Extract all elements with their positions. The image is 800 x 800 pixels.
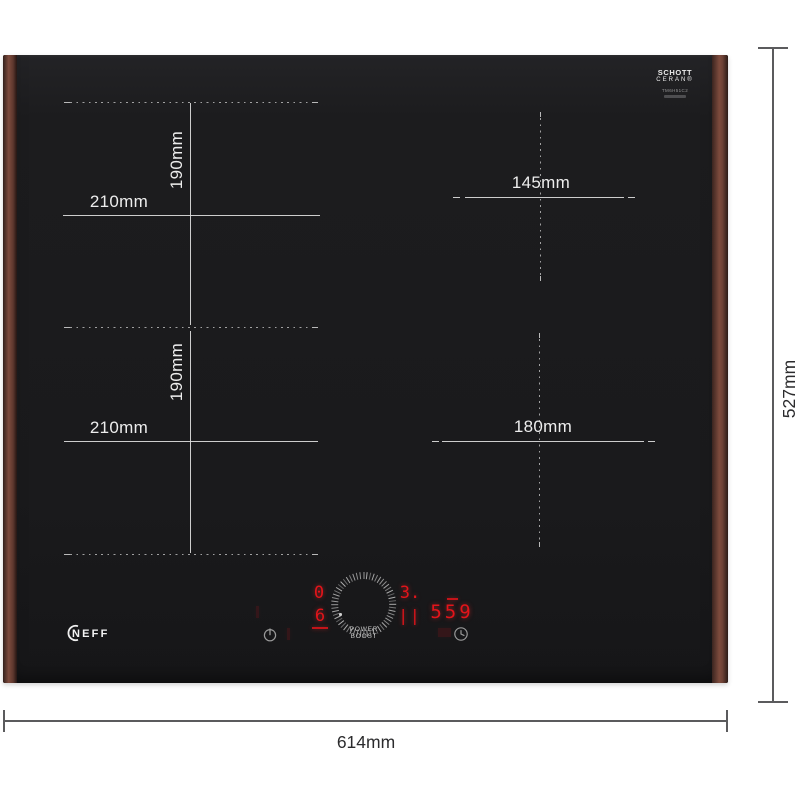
dial-tick — [332, 600, 339, 602]
flexzone-dotted-middle — [64, 327, 318, 328]
wood-trim-left — [3, 55, 17, 683]
dial-tick — [360, 572, 362, 579]
dial-tick — [332, 603, 339, 604]
schott-model-subtext-blur — [664, 95, 686, 98]
zone-bottomright-diameter-label: 180mm — [498, 417, 588, 437]
timer-overline — [447, 598, 458, 600]
zone-topright-dash-right — [628, 197, 635, 198]
schott-line1: SCHOTT — [645, 69, 705, 77]
width-dim-label: 614mm — [316, 732, 416, 752]
schott-ceran-mark: SCHOTT CERAN® TM6H51C2 — [645, 69, 705, 98]
dial-tick — [332, 606, 339, 608]
neff-logo-text: NEFF — [72, 628, 110, 640]
power-boost-line2: BOOST — [334, 633, 394, 640]
ghost-segment-timer — [438, 628, 451, 637]
dial-tick — [389, 606, 396, 608]
zone-topleft-depth-label: 190mm — [167, 115, 187, 205]
width-dim-line — [3, 720, 728, 722]
zone-bottomleft-width-label: 210mm — [74, 418, 164, 438]
timer-clock-icon — [453, 626, 469, 647]
zone-bottomright-axis-horizontal — [442, 441, 644, 442]
zone-right-level-top: 3. — [397, 583, 423, 603]
zone-bottomright-axis-vertical — [539, 333, 540, 547]
zone-topright-axis-horizontal — [465, 197, 624, 198]
schott-line2: CERAN® — [645, 77, 705, 84]
zone-left-level-top: 0 — [307, 583, 331, 603]
neff-logo: NEFF — [63, 624, 119, 647]
zone-bottomright-dash-left — [432, 441, 439, 442]
ghost-segment-left2 — [287, 628, 290, 640]
zone-topleft-axis-horizontal — [63, 215, 320, 216]
power-boost-label: POWER BOOST — [334, 626, 394, 640]
flexzone-dotted-bottom — [64, 554, 318, 555]
zone-left-underline — [312, 627, 328, 629]
zone-topleft-axis-vertical — [190, 103, 191, 325]
zone-bottomleft-depth-label: 190mm — [167, 327, 187, 417]
power-icon — [262, 626, 278, 648]
depth-dim-line — [772, 47, 774, 703]
zone-bottomright-dash-right — [648, 441, 655, 442]
dial-tick — [389, 596, 396, 599]
width-dim-tick-right — [726, 710, 728, 732]
dial-tick — [389, 600, 396, 602]
depth-dim-label: 527mm — [779, 339, 799, 439]
schott-model-text: TM6H51C2 — [645, 88, 705, 94]
dial-tick — [363, 572, 364, 579]
zone-topright-diameter-label: 145mm — [496, 173, 586, 193]
dial-marker-dot — [339, 613, 342, 616]
zone-right-level-bottom: || — [397, 606, 423, 625]
zone-topright-dash-left — [453, 197, 460, 198]
power-boost-line1: POWER — [334, 626, 394, 633]
dial-tick — [389, 609, 396, 612]
dial-tick — [390, 603, 397, 604]
depth-dim-tick-bottom — [758, 701, 788, 703]
timer-display: 559 — [427, 601, 477, 623]
wood-trim-right — [712, 55, 728, 683]
ghost-segment-left1 — [256, 606, 259, 618]
zone-bottomleft-axis-horizontal — [64, 441, 318, 442]
zone-topleft-width-label: 210mm — [74, 192, 164, 212]
